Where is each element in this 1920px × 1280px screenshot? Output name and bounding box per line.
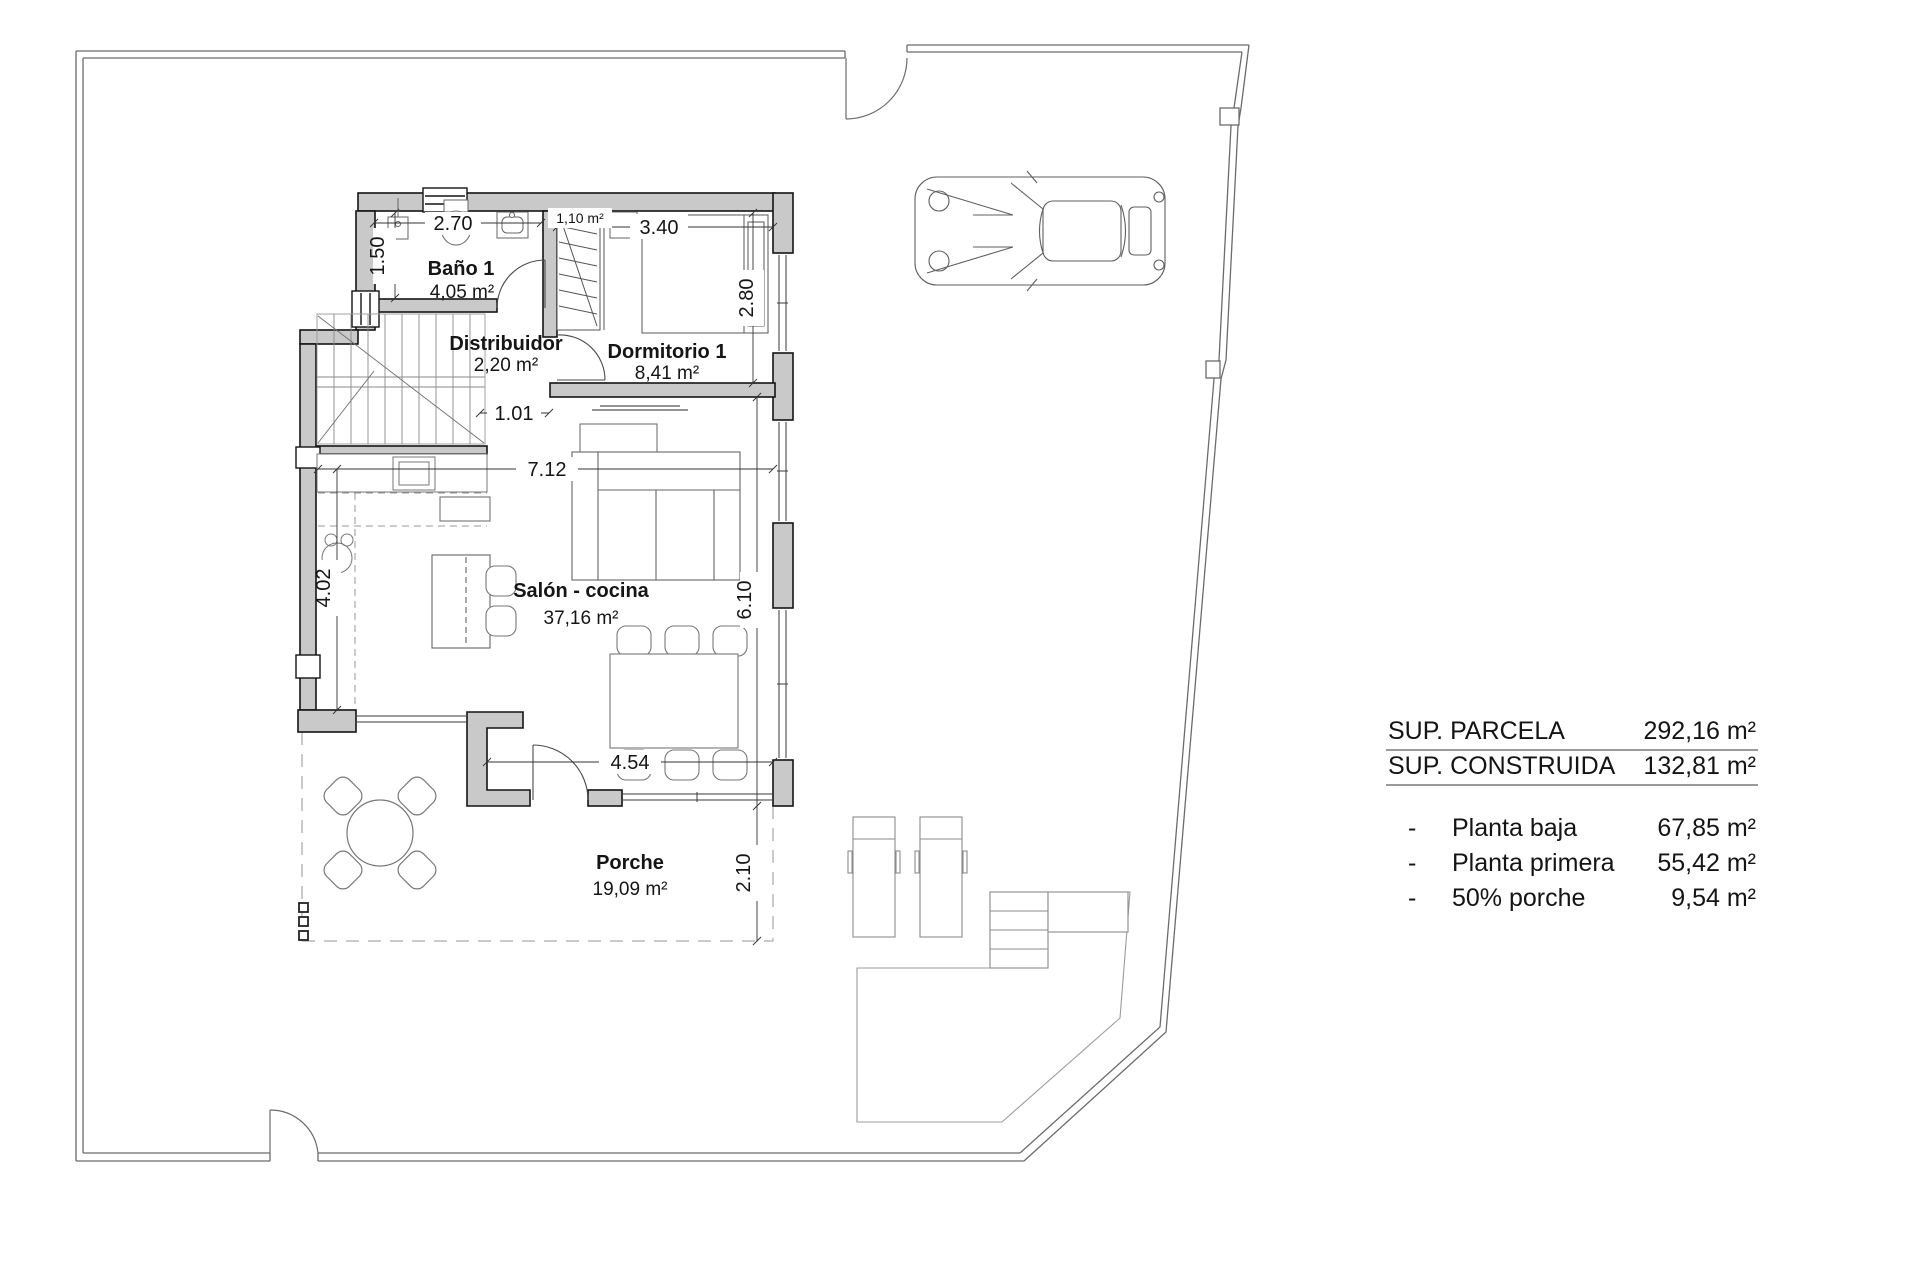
- kitchen-counter: [317, 454, 487, 492]
- kitchen-island: [432, 555, 490, 648]
- garden-steps: [990, 892, 1128, 968]
- summary-value: 292,16 m²: [1643, 717, 1756, 746]
- summary-items: - Planta baja 67,85 m² - Planta primera …: [1386, 812, 1758, 917]
- item-label: 50% porche: [1452, 884, 1671, 913]
- summary-label: SUP. PARCELA: [1388, 717, 1565, 746]
- dim-armario-area: 1,10 m²: [556, 210, 604, 226]
- dim-porch-depth: 2.10: [733, 854, 755, 893]
- bullet: -: [1388, 849, 1452, 878]
- dim-dorm-width: 3.40: [640, 217, 679, 239]
- item-label: Planta baja: [1452, 814, 1657, 843]
- dim-salon-left-depth: 4.02: [313, 569, 335, 608]
- porch-table: [320, 773, 439, 892]
- room-area-dormitorio: 8,41 m²: [635, 363, 699, 384]
- dim-salon-right-depth: 6.10: [734, 581, 756, 620]
- floor-plan-page: 2.70 1.50 1,10 m² 3.40 2.80 1.01 7.12 4.…: [0, 0, 1920, 1280]
- pedestrian-gate: [270, 1110, 318, 1153]
- wardrobe: [557, 212, 604, 330]
- summary-row-construida: SUP. CONSTRUIDA 132,81 m²: [1386, 751, 1758, 786]
- room-area-porche: 19,09 m²: [593, 879, 668, 900]
- sun-lounger: [848, 817, 900, 937]
- car: [915, 171, 1165, 291]
- sofa: [572, 452, 740, 580]
- vehicle-gate: [846, 58, 907, 119]
- bullet: -: [1388, 884, 1452, 913]
- island-chair: [486, 566, 516, 596]
- dim-hall-opening: 1.01: [495, 403, 534, 425]
- shower-basin: [497, 212, 528, 238]
- summary-row-parcela: SUP. PARCELA 292,16 m²: [1386, 716, 1758, 751]
- island-chair: [486, 606, 516, 636]
- room-label-bano: Baño 1: [428, 258, 495, 280]
- dim-porch-width: 4.54: [611, 752, 650, 774]
- sun-lounger: [915, 817, 967, 937]
- summary-item-planta-primera: - Planta primera 55,42 m²: [1386, 847, 1758, 882]
- summary-label: SUP. CONSTRUIDA: [1388, 752, 1615, 781]
- room-label-porche: Porche: [596, 852, 664, 874]
- item-value: 55,42 m²: [1657, 849, 1756, 878]
- dim-salon-width: 7.12: [528, 459, 567, 481]
- summary-item-planta-baja: - Planta baja 67,85 m²: [1386, 812, 1758, 847]
- area-summary: SUP. PARCELA 292,16 m² SUP. CONSTRUIDA 1…: [1386, 716, 1758, 917]
- coffee-table: [440, 497, 490, 521]
- bullet: -: [1388, 814, 1452, 843]
- room-area-bano: 4,05 m²: [430, 282, 494, 303]
- porch-lights: [299, 903, 308, 940]
- summary-value: 132,81 m²: [1643, 752, 1756, 781]
- sideboard: [580, 424, 657, 452]
- item-label: Planta primera: [1452, 849, 1657, 878]
- room-label-distribuidor: Distribuidor: [449, 333, 563, 355]
- tv-line: [592, 406, 688, 410]
- item-value: 9,54 m²: [1671, 884, 1756, 913]
- item-value: 67,85 m²: [1657, 814, 1756, 843]
- room-area-distribuidor: 2,20 m²: [474, 355, 538, 376]
- parcel-boundary: [76, 45, 1249, 1161]
- room-label-dormitorio: Dormitorio 1: [608, 341, 727, 363]
- room-label-salon: Salón - cocina: [513, 580, 649, 602]
- floor-plan-drawing: 2.70 1.50 1,10 m² 3.40 2.80 1.01 7.12 4.…: [0, 0, 1920, 1280]
- dim-bano-width: 2.70: [434, 213, 473, 235]
- dim-dorm-depth: 2.80: [736, 279, 758, 318]
- room-area-salon: 37,16 m²: [544, 608, 619, 629]
- dim-bano-depth: 1.50: [367, 237, 389, 276]
- summary-item-porche: - 50% porche 9,54 m²: [1386, 882, 1758, 917]
